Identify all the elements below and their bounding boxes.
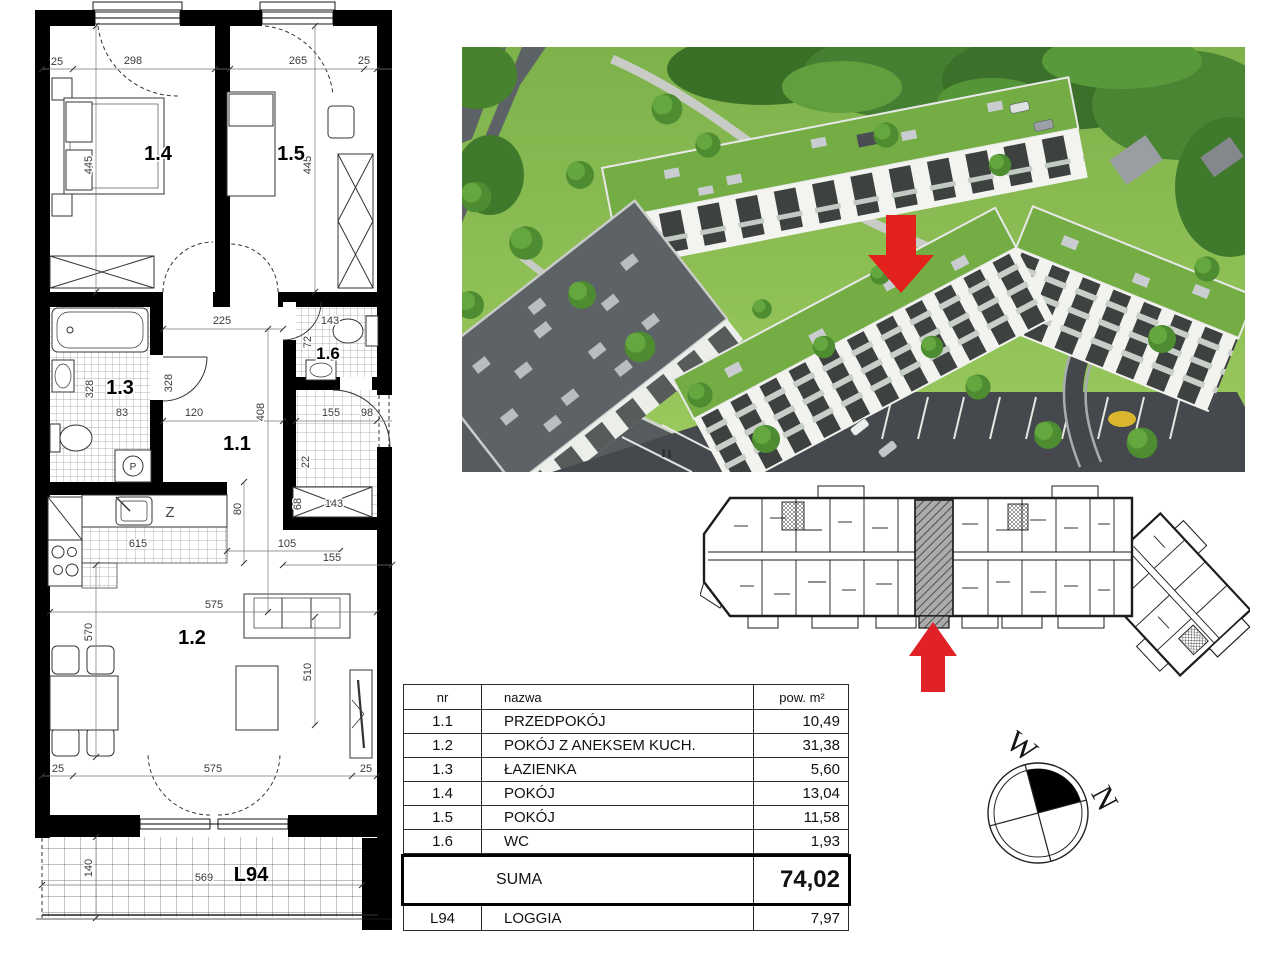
overview-highlighted-unit	[915, 500, 953, 628]
room-label-1-2: 1.2	[178, 627, 206, 649]
cell-nr: 1.2	[404, 734, 482, 757]
header-name: nazwa	[482, 685, 754, 709]
room-label-loggia: L94	[234, 864, 269, 886]
cell-nr: 1.5	[404, 806, 482, 829]
cell-nr: 1.1	[404, 710, 482, 733]
dim-label: 328	[163, 374, 175, 392]
page-canvas: 25 298 265 25 445 445 225 328 328 83 120…	[0, 0, 1280, 953]
cell-area: 7,97	[754, 906, 850, 930]
dim-label: 569	[195, 872, 213, 884]
dim-label: 570	[83, 623, 95, 641]
dim-label: 105	[278, 538, 296, 550]
cell-area: 5,60	[754, 758, 850, 781]
apartment-floorplan-svg: 25 298 265 25 445 445 225 328 328 83 120…	[0, 0, 420, 953]
dim-label: 575	[205, 599, 223, 611]
cell-name: POKÓJ	[482, 782, 754, 805]
table-row: 1.1 PRZEDPOKÓJ 10,49	[403, 710, 849, 734]
dim-label: 225	[213, 315, 231, 327]
table-row: 1.3 ŁAZIENKA 5,60	[403, 758, 849, 782]
cell-area: 11,58	[754, 806, 850, 829]
room-label-1-3: 1.3	[106, 377, 134, 399]
dim-label: 140	[83, 859, 95, 877]
cell-name: ŁAZIENKA	[482, 758, 754, 781]
cell-area: 13,04	[754, 782, 850, 805]
cell-nr: L94	[404, 906, 482, 930]
cell-name: PRZEDPOKÓJ	[482, 710, 754, 733]
dim-label: 25	[360, 763, 372, 775]
dim-label: 445	[83, 156, 95, 174]
cell-area: 1,93	[754, 830, 850, 853]
table-row: 1.5 POKÓJ 11,58	[403, 806, 849, 830]
room-label-1-1: 1.1	[223, 433, 251, 455]
table-row: 1.4 POKÓJ 13,04	[403, 782, 849, 806]
yellow-bush	[1108, 411, 1136, 427]
cell-name: POKÓJ	[482, 806, 754, 829]
dim-label: 298	[124, 55, 142, 67]
dim-label: 72	[302, 336, 314, 348]
dim-label: 155	[322, 407, 340, 419]
dim-label: 143	[325, 498, 343, 510]
dim-label: 328	[84, 380, 96, 398]
cell-name: LOGGIA	[482, 906, 754, 930]
cell-nr: 1.6	[404, 830, 482, 853]
cell-nr: 1.4	[404, 782, 482, 805]
dim-label: 155	[323, 552, 341, 564]
dim-label: 25	[358, 55, 370, 67]
area-table: nr nazwa pow. m² 1.1 PRZEDPOKÓJ 10,49 1.…	[403, 684, 849, 931]
compass-rose-svg: W N	[975, 730, 1135, 900]
dim-label: 575	[204, 763, 222, 775]
table-row: 1.2 POKÓJ Z ANEKSEM KUCH. 31,38	[403, 734, 849, 758]
suma-label: SUMA	[404, 857, 754, 903]
dim-label: 143	[321, 315, 339, 327]
washer-label: P	[130, 462, 137, 473]
unit-arrow-overview	[909, 622, 957, 692]
table-suma-row: SUMA 74,02	[401, 854, 851, 906]
building-overview-svg	[700, 478, 1250, 700]
dim-label: 408	[255, 403, 267, 421]
dim-label: 25	[52, 763, 64, 775]
table-row: 1.6 WC 1,93	[403, 830, 849, 854]
dim-label: 68	[292, 498, 304, 510]
room-label-1-5: 1.5	[277, 143, 305, 165]
dishwasher-label: Z	[165, 504, 174, 521]
table-loggia-row: L94 LOGGIA 7,97	[403, 906, 849, 931]
cell-name: POKÓJ Z ANEKSEM KUCH.	[482, 734, 754, 757]
cell-area: 31,38	[754, 734, 850, 757]
header-nr: nr	[404, 685, 482, 709]
aerial-render-svg	[462, 47, 1245, 472]
dim-label: 83	[116, 407, 128, 419]
dim-label: 120	[185, 407, 203, 419]
room-label-1-6: 1.6	[316, 344, 340, 363]
dim-label: 25	[51, 56, 63, 68]
dim-label: 98	[361, 407, 373, 419]
cell-area: 10,49	[754, 710, 850, 733]
suma-value: 74,02	[754, 857, 850, 903]
dim-label: 265	[289, 55, 307, 67]
dim-label: 510	[302, 663, 314, 681]
compass-rose: W N	[988, 730, 1126, 863]
header-area: pow. m²	[754, 685, 850, 709]
compass-north-label: N	[1084, 780, 1125, 816]
dim-label: 22	[300, 456, 312, 468]
cell-nr: 1.3	[404, 758, 482, 781]
dim-label: 615	[129, 538, 147, 550]
room-label-1-4: 1.4	[144, 143, 173, 165]
cell-name: WC	[482, 830, 754, 853]
table-header-row: nr nazwa pow. m²	[403, 684, 849, 710]
dim-label: 80	[232, 503, 244, 515]
